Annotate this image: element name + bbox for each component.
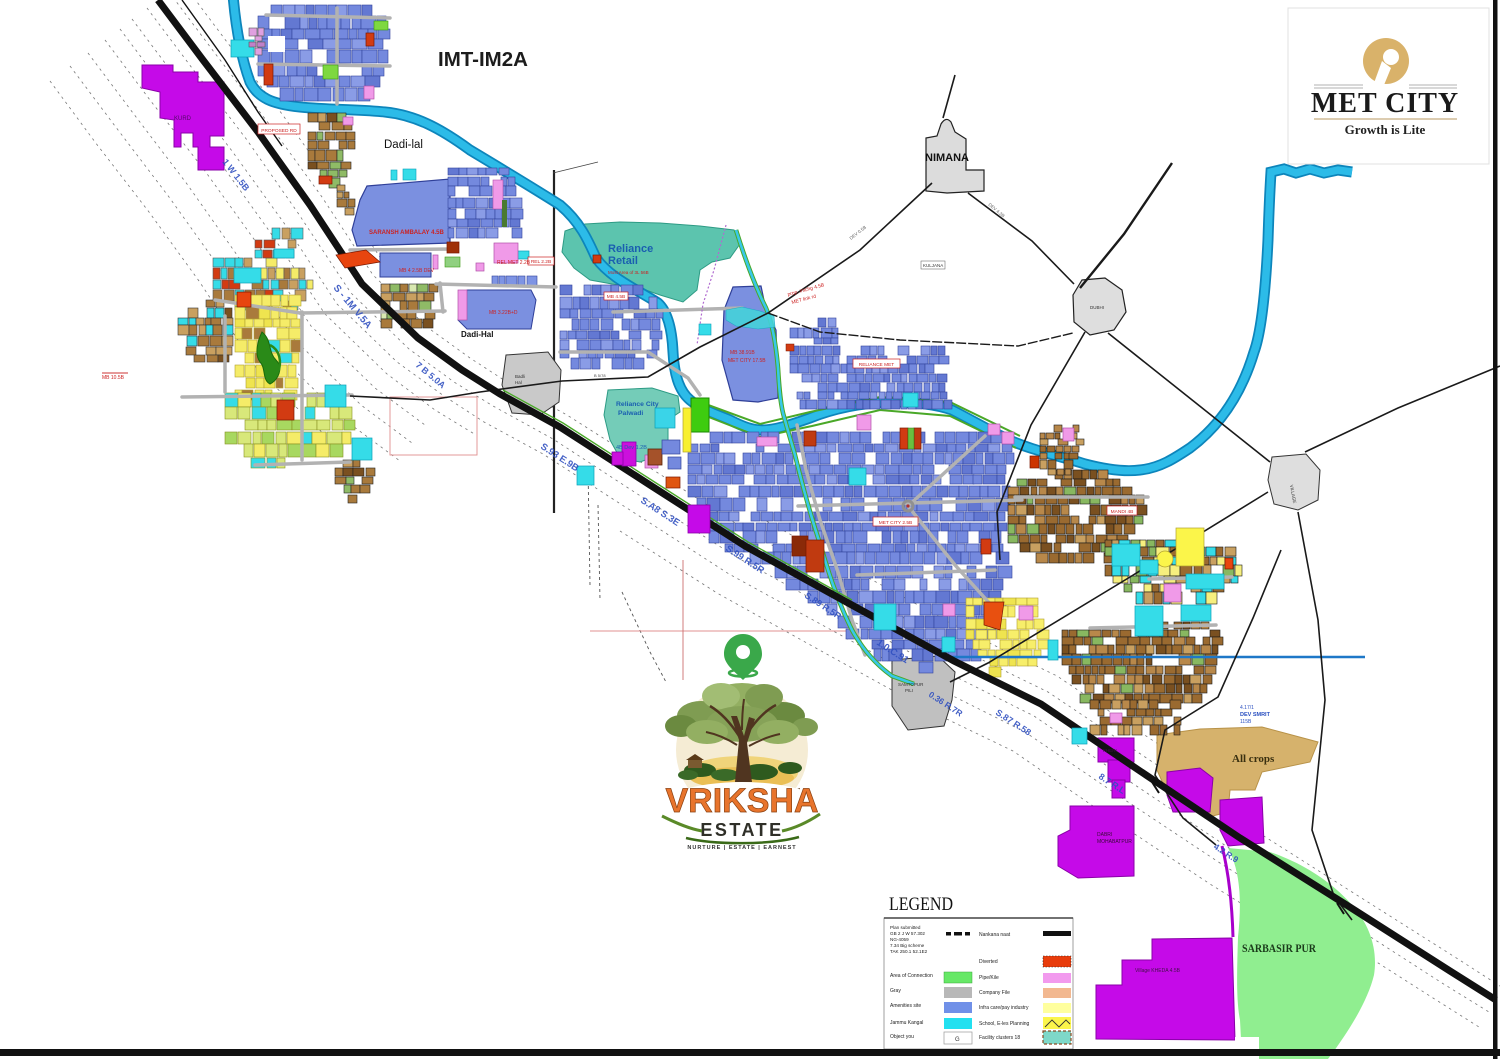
svg-text:KURD: KURD <box>174 116 192 122</box>
svg-text:GB 2 J W 57.302: GB 2 J W 57.302 <box>890 931 925 936</box>
svg-text:DABRI: DABRI <box>1097 832 1112 838</box>
svg-text:Most Area of 3L 56B: Most Area of 3L 56B <box>608 270 649 275</box>
svg-text:DEV SMRIT: DEV SMRIT <box>1240 712 1271 718</box>
svg-text:Growth is Lite: Growth is Lite <box>1345 122 1426 137</box>
svg-text:Infra care/pay industry: Infra care/pay industry <box>979 1005 1029 1011</box>
svg-text:MANDI 4B: MANDI 4B <box>1111 509 1134 515</box>
svg-text:Amenities site: Amenities site <box>890 1003 921 1009</box>
svg-text:IMT-IM2A: IMT-IM2A <box>438 48 528 71</box>
svg-text:MET CITY 17.5B: MET CITY 17.5B <box>728 358 766 364</box>
svg-text:MB 10.5B: MB 10.5B <box>102 375 125 381</box>
svg-text:G: G <box>955 1037 960 1043</box>
svg-text:MET CITY 2.5B: MET CITY 2.5B <box>879 520 912 526</box>
svg-text:4.17/1: 4.17/1 <box>1240 705 1254 711</box>
svg-text:LEGEND: LEGEND <box>889 895 953 915</box>
svg-text:NG-4059: NG-4059 <box>890 937 909 942</box>
svg-text:Gray: Gray <box>890 988 901 994</box>
svg-text:MB 38.91B: MB 38.91B <box>730 350 755 356</box>
svg-text:MB 4.5B: MB 4.5B <box>607 294 625 300</box>
svg-text:MOHABATPUR: MOHABATPUR <box>1097 839 1132 845</box>
svg-text:TAK 250.1 52.1E2: TAK 250.1 52.1E2 <box>890 949 928 954</box>
svg-text:MET CITY: MET CITY <box>1311 88 1459 119</box>
svg-text:B 5/78: B 5/78 <box>594 373 606 378</box>
svg-text:7.34 Big scheme: 7.34 Big scheme <box>890 943 925 948</box>
svg-text:Company File: Company File <box>979 990 1010 996</box>
svg-text:KULJANA: KULJANA <box>923 263 943 268</box>
svg-text:RELIANCE MET: RELIANCE MET <box>859 362 895 368</box>
svg-text:Facility clusters 18: Facility clusters 18 <box>979 1035 1020 1041</box>
svg-text:REL 2.2B: REL 2.2B <box>531 259 551 265</box>
svg-text:Plan submitted: Plan submitted <box>890 925 921 930</box>
svg-text:MB 3.22B+D: MB 3.22B+D <box>489 310 518 316</box>
svg-text:MB 4 2.5B DEV: MB 4 2.5B DEV <box>399 268 435 274</box>
svg-text:SARBASIR PUR: SARBASIR PUR <box>1242 943 1317 955</box>
svg-text:KHERI: KHERI <box>1103 748 1117 753</box>
svg-text:Area of Connection: Area of Connection <box>890 973 933 979</box>
svg-text:NURTURE | ESTATE | EARNEST: NURTURE | ESTATE | EARNEST <box>687 845 796 851</box>
svg-text:Dadi-lal: Dadi-lal <box>384 139 423 151</box>
svg-text:Hal: Hal <box>515 380 522 385</box>
svg-text:Reliance: Reliance <box>608 243 653 255</box>
svg-text:115B: 115B <box>1240 719 1252 725</box>
svg-text:Pipe/Kile: Pipe/Kile <box>979 975 999 981</box>
svg-text:Retail: Retail <box>608 255 638 267</box>
svg-text:PILI: PILI <box>905 688 913 693</box>
svg-text:REL MET 2.2B: REL MET 2.2B <box>497 260 531 266</box>
svg-text:SAMTOPUR: SAMTOPUR <box>898 682 924 687</box>
svg-text:Village KHEDA 4.5B: Village KHEDA 4.5B <box>1135 968 1181 974</box>
svg-text:Dadi-Hal: Dadi-Hal <box>461 330 493 339</box>
svg-text:SARANSH AMBALAY 4.5B: SARANSH AMBALAY 4.5B <box>369 230 444 236</box>
svg-text:NIMANA: NIMANA <box>925 152 969 164</box>
svg-text:ESTATE: ESTATE <box>700 820 783 840</box>
svg-text:Badli: Badli <box>515 374 525 379</box>
svg-text:Nankana naat: Nankana naat <box>979 932 1011 938</box>
svg-text:Jammu Kangal: Jammu Kangal <box>890 1020 923 1026</box>
svg-text:PROPOSED RD: PROPOSED RD <box>261 128 297 134</box>
svg-text:All crops: All crops <box>1232 753 1275 765</box>
svg-text:Reliance City: Reliance City <box>616 401 659 408</box>
svg-text:DUBHI: DUBHI <box>1090 305 1104 310</box>
svg-text:VRIKSHA: VRIKSHA <box>665 782 818 820</box>
svg-text:Diverted: Diverted <box>979 959 998 965</box>
svg-text:Object you: Object you <box>890 1034 914 1040</box>
svg-text:4B Dev 1.2B: 4B Dev 1.2B <box>616 445 647 451</box>
svg-text:School, E-les Planning: School, E-les Planning <box>979 1021 1030 1027</box>
svg-text:Palwadi: Palwadi <box>618 410 643 417</box>
